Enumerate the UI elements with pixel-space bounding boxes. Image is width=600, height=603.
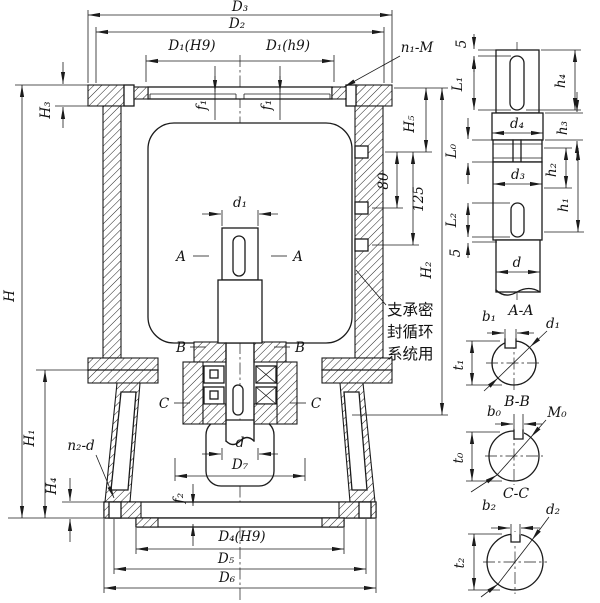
section-title-CC: C-C bbox=[503, 486, 529, 502]
dim-h1: h₁ bbox=[556, 198, 572, 212]
right-wall-port-2 bbox=[355, 202, 368, 214]
dim-L2: L₂ bbox=[444, 213, 460, 228]
top-bolt-hole-left bbox=[124, 85, 134, 106]
right-wall-port-3 bbox=[355, 239, 368, 251]
dim-t1: t₁ bbox=[451, 360, 467, 371]
section-mark-A-left: A bbox=[174, 249, 186, 265]
shaft-thread-section bbox=[493, 140, 542, 162]
dim-D3: D₃ bbox=[231, 0, 248, 15]
top-bolt-hole-right bbox=[346, 85, 356, 106]
section-mark-B-left: B bbox=[175, 340, 186, 356]
shaft-top-keyway bbox=[510, 56, 524, 110]
dim-125: 125 bbox=[411, 186, 427, 212]
right-wall bbox=[355, 106, 383, 358]
dim-d1-main: d₁ bbox=[233, 195, 247, 211]
dim-d-shaft: d bbox=[513, 255, 522, 271]
left-wall bbox=[103, 106, 121, 358]
dim-d3: d₃ bbox=[511, 167, 525, 183]
top-flange-right bbox=[356, 85, 392, 106]
dim-D6: D₆ bbox=[218, 570, 236, 586]
dim-5-top: 5 bbox=[454, 40, 470, 49]
dim-n2d: n₂-d bbox=[67, 438, 95, 454]
section-mark-C-right: C bbox=[311, 396, 322, 412]
annotation-line2: 封循环 bbox=[387, 323, 434, 341]
dim-D7: D₇ bbox=[231, 457, 249, 473]
section-mark-A-right: A bbox=[291, 249, 303, 265]
dim-h4: h₄ bbox=[553, 74, 569, 88]
dim-f1-left: f₁ bbox=[194, 100, 210, 111]
dim-d1-section: d₁ bbox=[546, 316, 560, 332]
section-title-BB: B-B bbox=[503, 394, 530, 410]
dim-d4: d₄ bbox=[510, 116, 524, 132]
section-mark-C-left: C bbox=[159, 396, 170, 412]
cover-clamp-left bbox=[134, 87, 148, 99]
annotation-line1: 支承密 bbox=[387, 301, 434, 319]
dim-H3: H₃ bbox=[38, 101, 54, 119]
dim-M0: M₀ bbox=[546, 405, 567, 421]
dim-b1: b₁ bbox=[482, 309, 496, 325]
annotation-line3: 系统用 bbox=[387, 345, 434, 363]
dim-d-main: d bbox=[236, 435, 245, 451]
dim-f1-right: f₁ bbox=[259, 100, 275, 111]
dim-H5: H₅ bbox=[402, 115, 418, 134]
shaft-keyway-lower bbox=[233, 385, 243, 415]
dim-80: 80 bbox=[376, 172, 392, 190]
dim-H1: H₁ bbox=[22, 429, 38, 447]
shaft-mid-keyway bbox=[511, 203, 524, 237]
dim-D5: D₅ bbox=[217, 551, 235, 567]
dim-H4: H₄ bbox=[44, 477, 60, 495]
gearbox-housing-drawing: D₃ D₂ D₁(H9) D₁(h9) n₁-M f₁ f₁ H₃ H H₁ H… bbox=[0, 0, 600, 603]
dim-b2: b₂ bbox=[482, 498, 496, 514]
dim-t0: t₀ bbox=[451, 452, 467, 463]
dim-f2: f₂ bbox=[171, 493, 187, 504]
engineering-drawing-page: D₃ D₂ D₁(H9) D₁(h9) n₁-M f₁ f₁ H₃ H H₁ H… bbox=[0, 0, 600, 603]
dim-L0: L₀ bbox=[444, 143, 460, 159]
section-title-AA: A-A bbox=[507, 303, 534, 319]
dim-D1h9: D₁(h9) bbox=[265, 38, 310, 54]
dim-H: H bbox=[2, 290, 18, 303]
bottom-bolt-hole-left bbox=[109, 502, 121, 518]
bottom-flange bbox=[104, 502, 376, 518]
dim-t2: t₂ bbox=[452, 558, 468, 569]
dim-H2: H₂ bbox=[419, 261, 435, 279]
dim-d2: d₂ bbox=[546, 502, 560, 518]
dim-D4H9: D₄(H9) bbox=[217, 529, 265, 545]
top-cover-plate bbox=[148, 87, 332, 99]
dim-5-bottom: 5 bbox=[448, 249, 464, 258]
section-mark-B-right: B bbox=[294, 340, 305, 356]
dim-n1M: n₁-M bbox=[401, 40, 435, 56]
top-flange-left bbox=[88, 85, 124, 106]
bottom-spigot bbox=[136, 518, 344, 527]
dim-h3: h₃ bbox=[555, 121, 571, 135]
right-wall-port-1 bbox=[355, 146, 368, 158]
dim-D2: D₂ bbox=[228, 16, 245, 32]
shaft-keyway-upper bbox=[233, 236, 245, 276]
dim-h2: h₂ bbox=[544, 163, 560, 177]
bottom-bolt-hole-right bbox=[359, 502, 371, 518]
cover-clamp-right bbox=[332, 87, 346, 99]
dim-L1: L₁ bbox=[450, 77, 466, 92]
dim-b0: b₀ bbox=[487, 404, 502, 420]
dim-D1H9: D₁(H9) bbox=[167, 38, 215, 54]
